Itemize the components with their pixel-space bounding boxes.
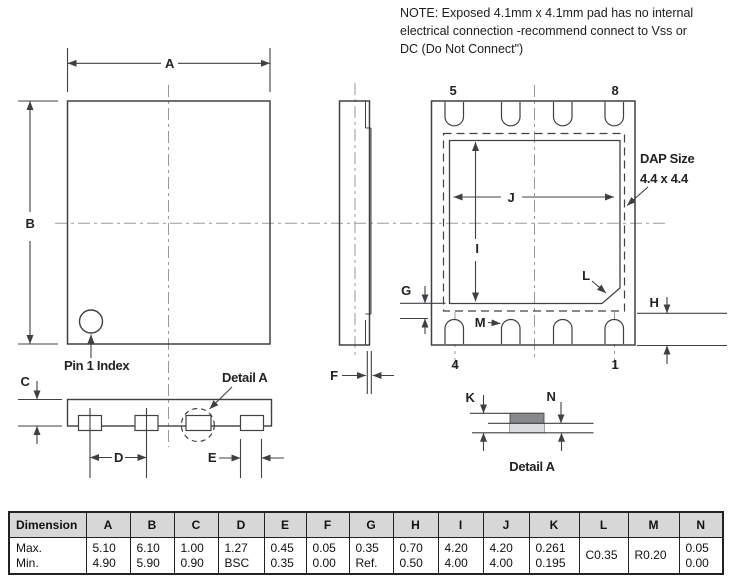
- drawing-canvas: NOTE: Exposed 4.1mm x 4.1mm pad has no i…: [0, 0, 729, 510]
- cell-j: 4.204.00: [483, 538, 529, 575]
- dim-label-e: E: [208, 450, 217, 465]
- cell-h: 0.700.50: [393, 538, 438, 575]
- dim-label-b: B: [25, 216, 34, 231]
- cell-l: C0.35: [579, 538, 628, 575]
- l-pointer-arrow: [592, 281, 606, 293]
- dim-label-j: J: [508, 190, 515, 205]
- detail-a-caption: Detail A: [509, 459, 555, 474]
- dim-label-g: G: [401, 283, 411, 298]
- cell-e: 0.450.35: [264, 538, 306, 575]
- header-f: F: [306, 512, 349, 538]
- row-label-min: Min.: [10, 556, 86, 571]
- dap-size-pointer-arrow: [627, 187, 648, 206]
- side-view: [340, 101, 395, 394]
- detail-a-lead-dark: [510, 413, 544, 423]
- cell-d: 1.27BSC: [218, 538, 264, 575]
- dim-label-c: C: [20, 374, 30, 389]
- header-d: D: [218, 512, 264, 538]
- pin1-index-label: Pin 1 Index: [64, 358, 130, 373]
- m-pointer-arrow: [488, 323, 501, 324]
- dap-size-label-line1: DAP Size: [640, 151, 695, 166]
- cell-a: 5.104.90: [86, 538, 130, 575]
- lead-side-view: [18, 381, 284, 478]
- detail-a-pointer-arrow: [210, 387, 233, 409]
- dim-label-l: L: [582, 268, 590, 283]
- header-dimension: Dimension: [9, 512, 86, 538]
- pin1-index-circle: [80, 310, 103, 333]
- table-header-row: Dimension A B C D E F G H I J K L M N: [9, 512, 723, 538]
- dim-label-a: A: [165, 56, 175, 71]
- detail-a-section: [470, 395, 594, 451]
- table-data-row: Max. Min. 5.104.90 6.105.90 1.000.90 1.2…: [9, 538, 723, 575]
- header-j: J: [483, 512, 529, 538]
- pin-number-5: 5: [450, 83, 457, 98]
- header-g: G: [349, 512, 393, 538]
- header-n: N: [679, 512, 723, 538]
- row-label-max: Max.: [10, 538, 86, 556]
- header-e: E: [264, 512, 306, 538]
- header-l: L: [579, 512, 628, 538]
- package-mechanical-drawing: NOTE: Exposed 4.1mm x 4.1mm pad has no i…: [0, 0, 729, 587]
- pin-number-8: 8: [612, 83, 619, 98]
- dimension-b: [18, 101, 58, 344]
- note-line-2: electrical connection -recommend connect…: [400, 24, 687, 38]
- dimension-c: [18, 381, 62, 444]
- cell-i: 4.204.00: [438, 538, 483, 575]
- dim-label-n: N: [546, 389, 555, 404]
- header-b: B: [130, 512, 174, 538]
- note-line-1: NOTE: Exposed 4.1mm x 4.1mm pad has no i…: [400, 6, 693, 20]
- header-i: I: [438, 512, 483, 538]
- cell-f: 0.050.00: [306, 538, 349, 575]
- top-view: [18, 48, 270, 358]
- dimension-n: [561, 402, 562, 451]
- dimension-table: Dimension A B C D E F G H I J K L M N Ma…: [8, 511, 724, 575]
- header-h: H: [393, 512, 438, 538]
- dimension-f: [342, 351, 394, 394]
- pin-number-4: 4: [452, 357, 460, 372]
- header-c: C: [174, 512, 218, 538]
- dim-label-k: K: [465, 390, 475, 405]
- note-line-3: DC (Do Not Connect"): [400, 42, 523, 56]
- cell-c: 1.000.90: [174, 538, 218, 575]
- dap-size-label-line2: 4.4 x 4.4: [640, 171, 689, 186]
- dim-label-m: M: [475, 315, 486, 330]
- pin-number-1: 1: [612, 357, 619, 372]
- dim-label-h: H: [649, 295, 658, 310]
- dim-label-i: I: [475, 241, 478, 256]
- cell-k: 0.2610.195: [529, 538, 579, 575]
- note-text: NOTE: Exposed 4.1mm x 4.1mm pad has no i…: [400, 6, 693, 56]
- lead-pads: [79, 416, 264, 431]
- header-m: M: [628, 512, 679, 538]
- dim-label-f: F: [330, 368, 338, 383]
- cell-b: 6.105.90: [130, 538, 174, 575]
- centerlines: [55, 83, 668, 447]
- dimension-e: [219, 439, 284, 478]
- header-k: K: [529, 512, 579, 538]
- detail-a-pointer-label: Detail A: [222, 370, 268, 385]
- detail-a-lead-light: [510, 423, 545, 433]
- cell-g: 0.35Ref.: [349, 538, 393, 575]
- header-a: A: [86, 512, 130, 538]
- row-labels-cell: Max. Min.: [9, 538, 86, 575]
- cell-m: R0.20: [628, 538, 679, 575]
- dim-label-d: D: [114, 450, 123, 465]
- bottom-view: [400, 101, 727, 364]
- cell-n: 0.050.00: [679, 538, 723, 575]
